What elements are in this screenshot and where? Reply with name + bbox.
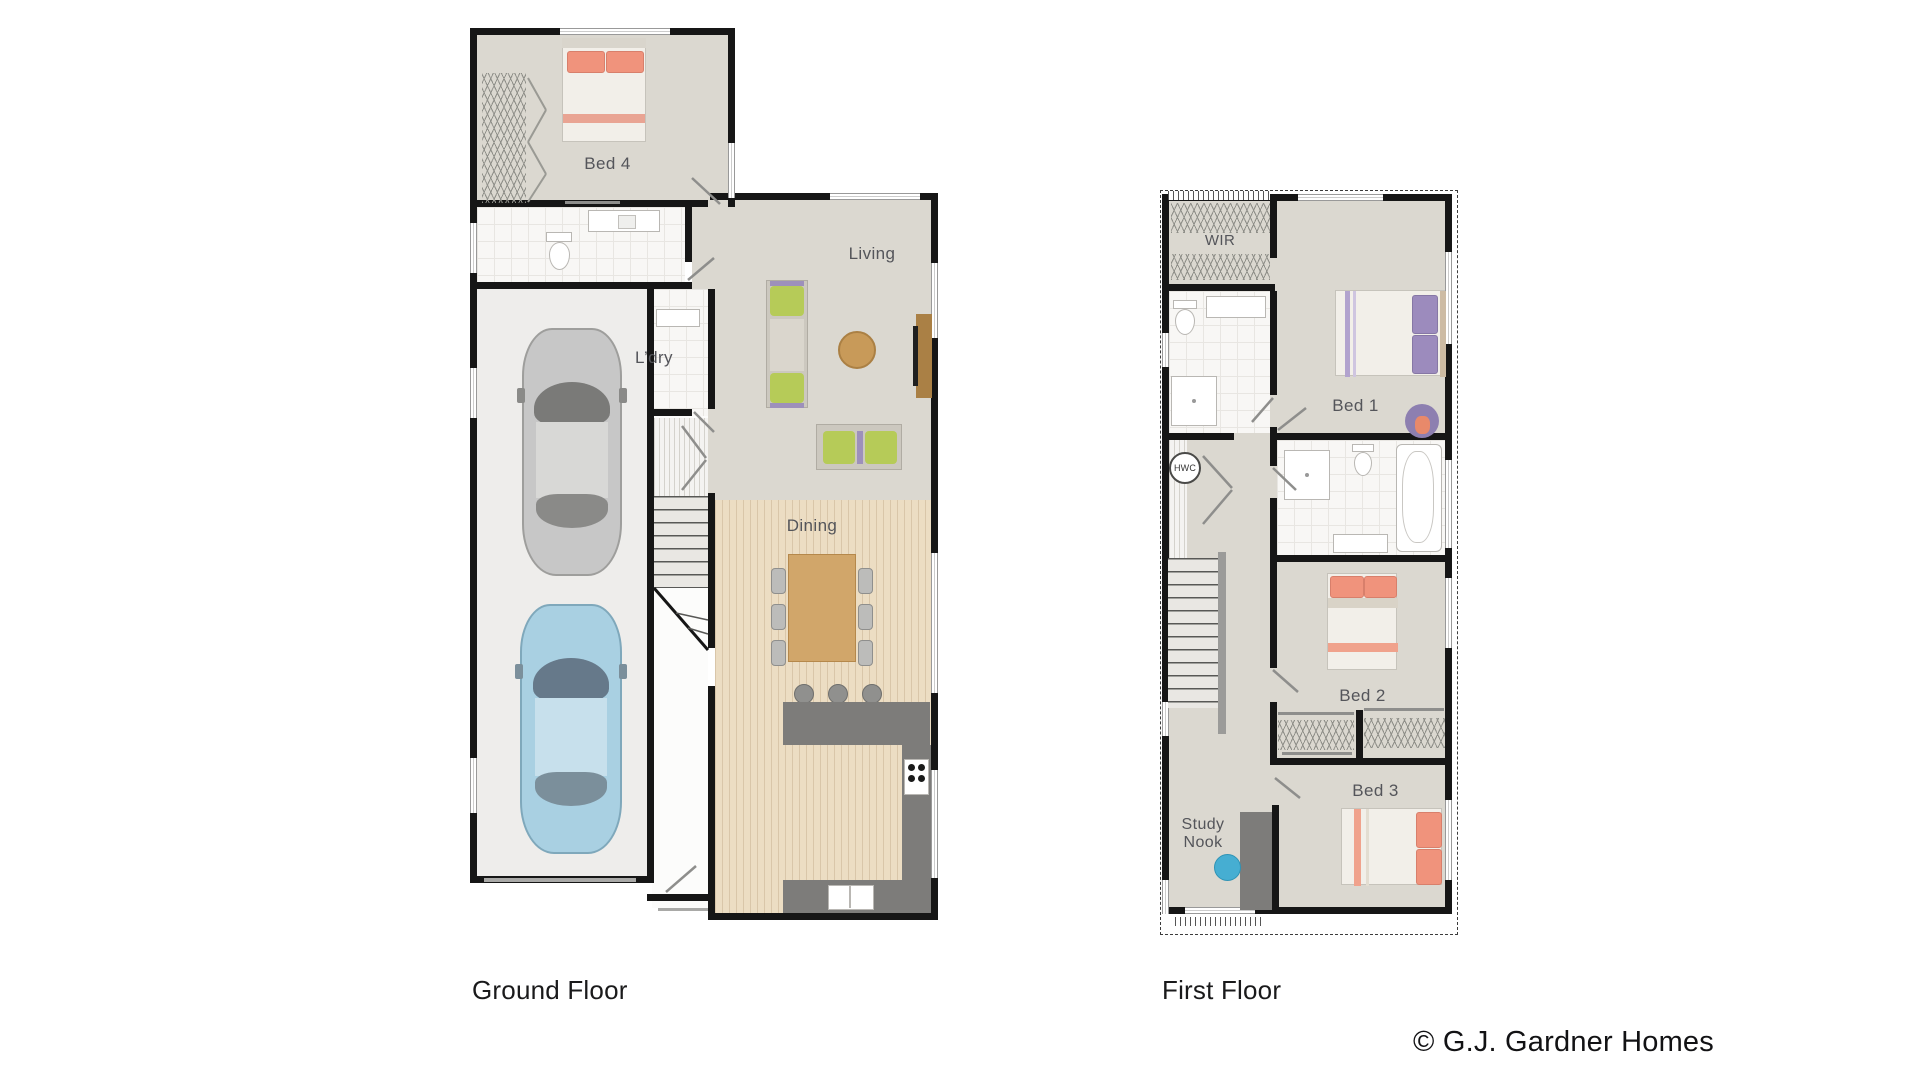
porch-step (658, 908, 708, 911)
bed3-sheet-stripe (1366, 809, 1369, 886)
window (931, 770, 938, 878)
bed2-blanket-stripe (1328, 643, 1398, 652)
pillow (1330, 576, 1364, 598)
wardrobe-door-track (1364, 708, 1444, 711)
room-label-study-nook: Study Nook (1170, 816, 1236, 853)
kitchen-island (783, 702, 930, 745)
wall (685, 207, 692, 262)
wall (652, 409, 692, 416)
burner (918, 775, 925, 782)
wall (1270, 194, 1277, 258)
kitchen-stool (794, 684, 814, 704)
car-windshield (533, 658, 609, 702)
bed1-throw-stripe (1345, 291, 1350, 377)
hwc-label: HWC (1174, 463, 1196, 473)
shower (1284, 450, 1330, 500)
garage-door (484, 878, 636, 882)
car-mirror (619, 664, 627, 679)
wall (1162, 194, 1169, 914)
room-label-living: Living (822, 244, 922, 264)
shower-drain (1305, 473, 1309, 477)
car-rear-window (536, 494, 608, 528)
wall (1270, 291, 1277, 395)
ensuite-vanity (1206, 296, 1266, 318)
wall (1270, 440, 1277, 466)
pillow (1364, 576, 1397, 598)
wall (1270, 555, 1452, 562)
bed4-blanket-stripe (563, 114, 645, 123)
window (830, 193, 920, 200)
window (1445, 800, 1452, 880)
car-silver (522, 328, 622, 576)
first-floor-stairs (1168, 558, 1218, 708)
car-mirror (517, 388, 525, 403)
kitchen-stool (828, 684, 848, 704)
wall (1356, 710, 1363, 758)
wall (1270, 498, 1277, 555)
door-track (565, 201, 620, 204)
vanity-basin (618, 215, 636, 229)
wall (1270, 702, 1277, 765)
wir-hanging-rail (1171, 203, 1270, 233)
understair-closet (654, 418, 708, 496)
room-label-dining: Dining (762, 516, 862, 536)
wall (470, 28, 477, 883)
deck-tick-band (1168, 191, 1270, 200)
room-label-bed3: Bed 3 (1328, 781, 1423, 801)
stair-balustrade (1218, 552, 1226, 734)
room-label-laundry: L’dry (618, 348, 690, 368)
ground-stairs (654, 496, 708, 588)
car-windshield (534, 382, 610, 426)
burner (908, 775, 915, 782)
room-label-bed2: Bed 2 (1315, 686, 1410, 706)
ground-floor-plan: Bed 4 Living L’dry Dining (470, 28, 948, 933)
room-label-bed4: Bed 4 (560, 154, 655, 174)
bathtub (1396, 444, 1442, 552)
window (1445, 578, 1452, 648)
floor-plan-image: Bed 4 Living L’dry Dining (0, 0, 1920, 1080)
chair-throw (1415, 416, 1430, 434)
wardrobe-hanging-rail (1278, 720, 1354, 750)
sofa-second (816, 424, 902, 470)
wir-hanging-rail (1171, 254, 1270, 280)
shower (1171, 376, 1217, 426)
kitchen-sink (828, 885, 874, 910)
wall (1270, 562, 1277, 668)
toilet-cistern (1352, 444, 1374, 452)
dining-table (788, 554, 856, 662)
sofa-cushion-green (865, 431, 897, 464)
study-desk (1240, 812, 1272, 910)
kitchen-stool (862, 684, 882, 704)
tv (913, 326, 918, 386)
room-label-wir: WIR (1170, 232, 1270, 249)
wall (708, 913, 938, 920)
sofa-seat (770, 319, 804, 371)
deck-tick-band (1175, 917, 1263, 926)
dining-chair (771, 568, 786, 594)
pillow (1412, 295, 1438, 334)
pillow (1416, 812, 1442, 848)
copyright-text: © G.J. Gardner Homes (1413, 1026, 1714, 1059)
wall (708, 289, 715, 409)
dining-chair (771, 640, 786, 666)
bed2-bed (1327, 573, 1397, 670)
window (931, 553, 938, 693)
bed4-wardrobe-hatch (482, 73, 526, 203)
wall (708, 686, 715, 913)
bed1-throw-stripe (1353, 291, 1356, 377)
wall (708, 493, 715, 648)
first-floor-title: First Floor (1162, 975, 1281, 1006)
bed3-blanket-stripe (1354, 809, 1361, 886)
window (931, 263, 938, 338)
bathroom-vanity (1333, 534, 1388, 553)
cooktop (904, 759, 929, 795)
shower-drain (1192, 399, 1196, 403)
car-blue (520, 604, 622, 854)
bed1-headboard (1440, 291, 1446, 377)
wall (647, 894, 708, 901)
wall (1272, 805, 1279, 907)
dining-chair (858, 568, 873, 594)
wall (1162, 433, 1234, 440)
hwc-circle: HWC (1169, 452, 1201, 484)
pillow (606, 51, 644, 73)
dining-chair (858, 604, 873, 630)
window (470, 368, 477, 418)
wardrobe-door-track (1282, 752, 1352, 755)
pillow (567, 51, 605, 73)
wall (470, 282, 692, 289)
toilet-cistern (1173, 300, 1197, 309)
bed1-round-chair (1405, 404, 1439, 438)
dining-chair (771, 604, 786, 630)
window (1162, 880, 1169, 914)
laundry-bench (656, 309, 700, 327)
dining-chair (858, 640, 873, 666)
bed2-sheet-band (1328, 598, 1398, 608)
car-rear-window (535, 772, 607, 806)
toilet-cistern (546, 232, 572, 242)
car-roof (535, 698, 607, 776)
ground-floor-title: Ground Floor (472, 975, 628, 1006)
window (470, 758, 477, 813)
wall (1270, 758, 1452, 765)
car-mirror (515, 664, 523, 679)
bed3-bed (1341, 808, 1442, 885)
window (470, 223, 477, 273)
car-mirror (619, 388, 627, 403)
car-roof (536, 422, 608, 498)
sink-divider (849, 886, 851, 908)
sofa-cushion-green (770, 373, 804, 403)
first-floor-plan: HWC (1160, 190, 1458, 935)
window (1162, 333, 1169, 367)
burner (918, 764, 925, 771)
sofa-main (766, 280, 808, 408)
window (560, 28, 670, 35)
pillow (1416, 849, 1442, 885)
bathtub-inner (1402, 451, 1434, 543)
tv-unit (916, 314, 932, 398)
burner (908, 764, 915, 771)
bed4-headboard (562, 38, 646, 48)
sofa-cushion-green (823, 431, 855, 464)
study-chair (1214, 854, 1241, 881)
sofa-cushion-purple (857, 431, 863, 464)
pillow (1412, 335, 1438, 374)
wall (1169, 284, 1275, 291)
wardrobe-door-track (1278, 712, 1354, 715)
sofa-cushion-green (770, 286, 804, 316)
window (1445, 252, 1452, 344)
coffee-table (838, 331, 876, 369)
wall (647, 282, 654, 876)
window (728, 143, 735, 198)
sofa-cushion-purple (770, 403, 804, 408)
wardrobe-hanging-rail (1364, 718, 1445, 748)
bed1-bed (1335, 290, 1445, 376)
window (1445, 460, 1452, 548)
room-label-bed1: Bed 1 (1308, 396, 1403, 416)
window (1298, 194, 1383, 201)
